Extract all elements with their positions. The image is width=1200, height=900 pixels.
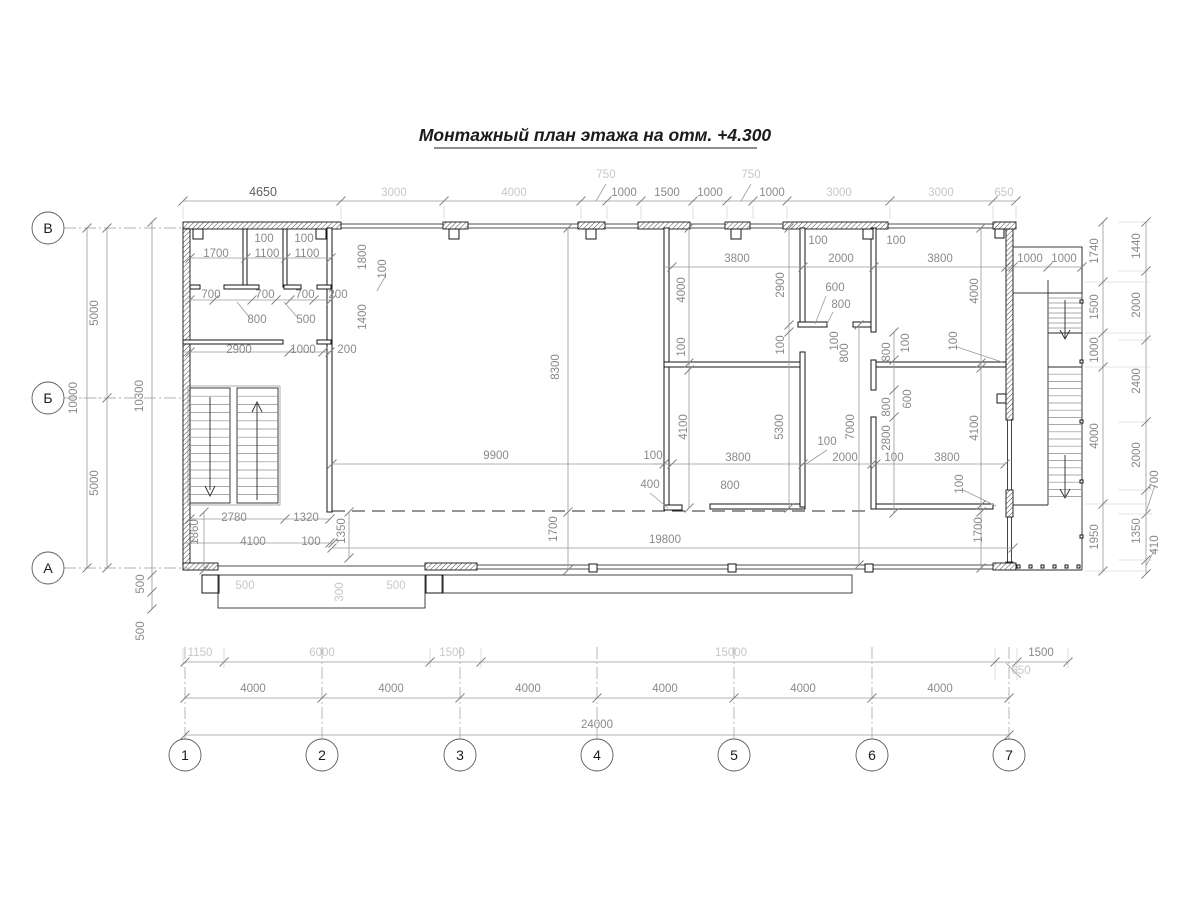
dimension-label: 700: [1149, 470, 1161, 489]
dimension-label: 1350: [1131, 518, 1143, 544]
dimension-label: 2000: [832, 452, 858, 464]
dimension-label: 100: [900, 333, 912, 352]
svg-text:1: 1: [181, 747, 189, 763]
dimension-label: 200: [328, 289, 347, 301]
dimension-label: 3000: [928, 187, 954, 199]
interior-walls: [183, 228, 1006, 512]
dimension-label: 4000: [927, 683, 953, 695]
dimension-label: 1100: [295, 248, 320, 260]
dimension-label: 100: [254, 233, 273, 245]
axis-bubble-В: В: [32, 212, 64, 244]
dimension-label: 1000: [1089, 337, 1101, 363]
dimension-label: 600: [902, 389, 914, 408]
dimension-label: 5300: [774, 414, 786, 440]
dimension-label: 4100: [969, 415, 981, 441]
dimension-label: 800: [881, 397, 893, 416]
dimension-label: 2400: [1131, 368, 1143, 394]
dimension-label: 100: [377, 259, 389, 278]
dimension-label: 2800: [881, 425, 893, 451]
axis-bubble-А: А: [32, 552, 64, 584]
dimension-label: 3000: [826, 187, 852, 199]
dimension-label: 1500: [1028, 647, 1054, 659]
axis-bubble-2: 2: [306, 739, 338, 771]
svg-text:В: В: [43, 220, 52, 236]
dimension-label: 2900: [775, 272, 787, 298]
dimension-label: 4650: [249, 185, 277, 199]
dimension-label: 3000: [381, 187, 407, 199]
dimension-label: 2000: [828, 253, 854, 265]
dimension-label: 4000: [969, 278, 981, 304]
dimension-label: 4000: [652, 683, 678, 695]
railing-posts: [1017, 300, 1083, 568]
dimension-label: 100: [954, 474, 966, 493]
dimension-label: 100: [829, 331, 841, 350]
dimension-label: 100: [886, 235, 905, 247]
svg-text:Б: Б: [43, 390, 52, 406]
dimension-label: 800: [720, 480, 739, 492]
dimension-label: 800: [831, 299, 850, 311]
dimension-label: 4000: [515, 683, 541, 695]
svg-text:4: 4: [593, 747, 601, 763]
axis-bubble-5: 5: [718, 739, 750, 771]
dimension-label: 4000: [501, 187, 527, 199]
dimension-label: 4000: [676, 277, 688, 303]
dimension-label: 500: [135, 621, 147, 640]
dimension-label: 1700: [973, 517, 985, 543]
dimension-label: 500: [386, 580, 405, 592]
dimension-label: 1000: [611, 187, 637, 199]
dimension-label: 700: [295, 289, 314, 301]
dimension-label: 1000: [697, 187, 723, 199]
porch-and-slab: [218, 575, 852, 608]
dimension-label: 1000: [1051, 253, 1077, 265]
stairs-right: [1013, 247, 1083, 570]
dimension-label: 1400: [357, 304, 369, 330]
dimension-label: 500: [235, 580, 254, 592]
svg-text:3: 3: [456, 747, 464, 763]
axis-bubble-4: 4: [581, 739, 613, 771]
dimension-label: 3800: [934, 452, 960, 464]
dimension-label: 4000: [378, 683, 404, 695]
dimension-label: 1860: [189, 519, 201, 545]
svg-text:2: 2: [318, 747, 326, 763]
dimension-label: 1500: [654, 187, 680, 199]
window-lines: [218, 224, 1012, 569]
dimension-label: 1350: [336, 518, 348, 544]
svg-text:А: А: [43, 560, 53, 576]
dimension-label: 3800: [724, 253, 750, 265]
dimension-label: 1800: [357, 244, 369, 270]
dimension-label: 2900: [226, 344, 252, 356]
dimension-label: 100: [948, 331, 960, 350]
dimension-label: 100: [294, 233, 313, 245]
axis-bubble-1: 1: [169, 739, 201, 771]
drawing-sheet: Монтажный план этажа на отм. +4.300: [0, 0, 1200, 900]
dimension-label: 2780: [221, 512, 247, 524]
dimension-label: 400: [640, 479, 659, 491]
svg-text:6: 6: [868, 747, 876, 763]
dimension-label: 800: [881, 342, 893, 361]
dimension-label: 4100: [678, 414, 690, 440]
dimension-label: 500: [135, 574, 147, 593]
dimension-label: 1000: [759, 187, 785, 199]
dimension-label: 4100: [240, 536, 266, 548]
dimension-label: 410: [1149, 535, 1161, 554]
dimension-label: 1320: [293, 512, 319, 524]
dimension-label: 15000: [715, 647, 747, 659]
dimension-label: 10300: [134, 380, 146, 412]
stairs-left: [188, 386, 280, 505]
dimension-label: 100: [775, 335, 787, 354]
drawing-title: Монтажный план этажа на отм. +4.300: [419, 125, 772, 148]
dimension-label: 1100: [255, 248, 280, 260]
dimension-label: 2000: [1131, 292, 1143, 318]
dimension-label: 700: [255, 289, 274, 301]
dimension-label: 5000: [89, 300, 101, 326]
dimension-label: 3800: [725, 452, 751, 464]
dimension-label: 750: [741, 169, 760, 181]
dimension-label: 4000: [1089, 423, 1101, 449]
dimension-label: 650: [994, 187, 1013, 199]
dimension-label: 1700: [548, 516, 560, 542]
dimension-label: 1700: [203, 248, 229, 260]
dimension-label: 300: [334, 582, 346, 601]
dimension-label: 3800: [927, 253, 953, 265]
dimension-label: 500: [296, 314, 315, 326]
dimension-label: 800: [247, 314, 266, 326]
axis-bubble-6: 6: [856, 739, 888, 771]
extension-lines: [80, 206, 1152, 680]
dimension-label: 100: [301, 536, 320, 548]
dimension-label: 700: [201, 289, 220, 301]
floor-plan-canvas: Монтажный план этажа на отм. +4.300: [0, 0, 1200, 900]
title-text: Монтажный план этажа на отм. +4.300: [419, 125, 772, 145]
dimension-label: 19800: [649, 534, 681, 546]
dimension-label: 750: [596, 169, 615, 181]
dimension-label: 9900: [483, 450, 509, 462]
dimension-label: 1150: [188, 647, 213, 659]
dimension-label: 100: [884, 452, 903, 464]
dimension-label: 7000: [845, 414, 857, 440]
dimension-label: 5000: [89, 470, 101, 496]
dimension-label: 1440: [1131, 233, 1143, 259]
dimension-label: 650: [1011, 665, 1030, 677]
dimension-label: 1500: [1089, 294, 1101, 320]
dimension-label: 6000: [309, 647, 335, 659]
dimension-label: 10000: [68, 382, 80, 414]
dimension-label: 1000: [290, 344, 316, 356]
dimension-label: 8300: [550, 354, 562, 380]
dimension-label: 24000: [581, 719, 613, 731]
dimension-label: 4000: [240, 683, 266, 695]
dimension-label: 1000: [1017, 253, 1043, 265]
dimension-label: 1950: [1089, 524, 1101, 550]
axis-bubble-3: 3: [444, 739, 476, 771]
dimension-label: 1500: [439, 647, 465, 659]
dimension-label: 100: [643, 450, 662, 462]
dimension-label: 600: [825, 282, 844, 294]
dimension-label: 4000: [790, 683, 816, 695]
dimension-label: 100: [676, 337, 688, 356]
dimension-label: 1740: [1089, 238, 1101, 264]
dimension-label: 100: [808, 235, 827, 247]
dimension-labels: 4650300040007501000150010007501000300030…: [68, 169, 1161, 731]
svg-text:5: 5: [730, 747, 738, 763]
svg-text:7: 7: [1005, 747, 1013, 763]
stair-treads: [190, 396, 278, 494]
dimension-label: 2000: [1131, 442, 1143, 468]
dimension-label: 100: [817, 436, 836, 448]
dimension-label: 200: [337, 344, 356, 356]
axis-bubble-7: 7: [993, 739, 1025, 771]
axis-bubble-Б: Б: [32, 382, 64, 414]
